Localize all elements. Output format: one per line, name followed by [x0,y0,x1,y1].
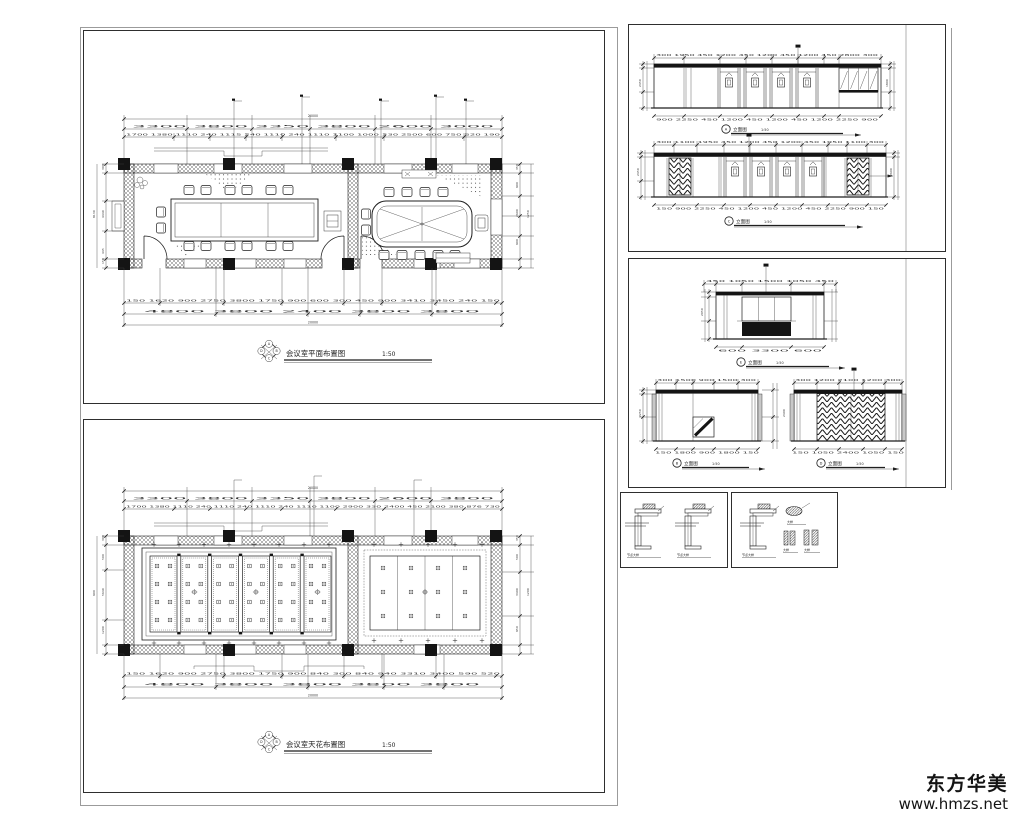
panel-ceiling-plan: 20000 3300 3800 3350 3800 2600 3800 1700… [83,419,605,793]
herringbone-feature-wall [817,394,885,441]
marker-letter: C [728,219,731,223]
wall-niche [452,164,478,173]
ceiling-title-block: A B C D 会议室天花布置图 1:50 [258,731,432,753]
trim-profile-detail: 大样 [786,503,810,525]
dim-label: 2400 [782,409,786,417]
arrowhead [855,133,861,136]
section-detail [625,504,664,549]
dim-label: 445 [101,248,105,254]
elevation-e: 450 1050 1500 1050 450 600 3300 600 2050… [700,264,845,370]
elevation-a: 300 1950 450 1200 450 1200 450 1200 450 … [638,45,896,137]
ceiling-coffer [304,556,331,632]
wall-niche [154,164,178,173]
dim-label: 2450 [638,79,642,87]
dim-label: 2450 [636,168,640,176]
dim-label: 300 [101,535,105,541]
herringbone-door [667,158,693,197]
drawing-title: 会议室平面布置图 [286,349,345,358]
column [223,644,235,656]
crown-band [656,390,758,394]
door-swing [144,236,167,259]
dim-row: 150 1050 2400 1050 150 [792,450,905,454]
dim-label: 150 [101,258,105,264]
dim-overall-bottom: 20000 [308,693,318,697]
sheet-outline-right [951,28,952,490]
side-column [790,394,794,441]
plan-keynote-leaders [232,95,474,164]
dim-label: 950 [515,626,519,632]
dim-label: 350 [515,535,519,541]
dim-label: 5640 [101,588,105,596]
dim-row: 3300 3800 3350 3800 2600 3000 [132,124,494,128]
dim-row: 300 1200 2100 1200 300 [795,378,902,382]
elevation-title: 立面图 [748,359,762,366]
trim-profile-detail: 大样 [804,530,820,553]
artwork-panel [693,417,714,437]
plan-dim-right: 350 900 2600 900 1250 [502,162,534,269]
elevation-scale: 1:50 [856,462,864,466]
ceiling-dim-top: 20000 3300 3800 3350 3800 2600 3800 1700… [122,476,503,536]
elevation-title: 立面图 [733,126,747,133]
panel-details-right: 节点大样 大样 大样 大样 [731,492,838,568]
column [425,644,437,656]
elevation-scale: 1:50 [712,462,720,466]
dim-row: 3300 3800 3350 3800 2600 3800 [132,496,494,500]
arrowhead [857,225,863,228]
window-screen-wall [737,297,796,336]
chair [201,242,211,251]
trim-profile-detail: 大样 [783,531,798,553]
chair [242,242,252,251]
ceiling-dim-left: 300 500 5640 1200 900 [92,534,124,655]
ceiling-coffer [150,556,177,632]
dim-overall-bottom: 20000 [308,320,318,324]
watermark-brand: 东方华美 [899,774,1008,796]
crown-band [654,153,886,157]
dim-label: 1800 [885,79,889,87]
chair [225,186,235,195]
wall-niche [452,536,478,545]
elevation-title: 立面图 [828,460,842,467]
floor-plan-drawing: 20000 3300 3800 3350 3800 2600 3000 1700… [84,31,604,403]
dim-row: 1700 1380 1110 240 1115 240 1110 240 111… [126,132,501,136]
ceiling-walls [118,523,502,671]
dim-label: 2050 [700,308,704,316]
wall-niche [184,645,206,654]
dim-label: 900 [515,239,519,245]
wall-niche [284,536,312,545]
dim-row: 1700 1380 1110 240 1110 240 1110 240 111… [126,504,501,508]
ceiling-dim-right: 350 500 3400 950 1200 [502,534,534,655]
elevation-title: 立面图 [684,460,698,467]
chair [157,207,166,217]
elevation-a-title: A 立面图 1:50 [722,125,861,137]
elevation-scale: 1:50 [764,220,772,224]
detail-caption: 大样 [783,547,789,552]
marker-letter: E [740,360,743,364]
drawing-title: 会议室天花布置图 [286,740,345,749]
elevations-ebd-drawing: 450 1050 1500 1050 450 600 3300 600 2050… [629,259,945,487]
chair [266,186,276,195]
column [425,158,437,170]
chair [397,251,407,260]
chair [438,188,448,197]
dim-row: 4800 3800 3800 3800 3800 [144,682,480,686]
side-column [652,394,656,441]
details-right-drawing: 节点大样 大样 大样 大样 [732,493,837,567]
detail-caption: 节点大样 [677,552,689,557]
dim-label: 8130 [92,210,96,218]
chair [201,186,211,195]
conference-room-left [157,173,342,257]
column [490,158,502,170]
elevation-b-title: B 立面图 1:50 [673,459,765,471]
column [342,158,354,170]
dim-label: 1200 [101,626,105,634]
chair [242,186,252,195]
dim-label: 2250 [638,409,642,417]
chair [402,188,412,197]
wall-niche [384,536,412,545]
dim-label: 2600 [889,168,893,176]
ceiling-grid-right [364,542,486,642]
plan-dim-bottom: 150 1620 900 2750 3800 1750 900 600 300 … [122,268,503,327]
wall-cabinet [112,201,124,231]
panel-elevations-ebd: 450 1050 1500 1050 450 600 3300 600 2050… [628,258,946,488]
dim-row: 150 1620 900 2750 3800 1750 900 840 300 … [126,671,501,675]
dim-row: 150 900 2250 450 1200 450 1200 450 2250 … [656,206,885,210]
marker-letter: B [276,349,278,353]
elevation-d: 300 1200 2100 1200 300 150 1050 2400 105… [782,368,906,471]
ceiling-coffer [181,556,208,632]
dim-label: 300 [101,164,105,170]
side-column [902,394,906,441]
panel-floor-plan: 20000 3300 3800 3350 3800 2600 3000 1700… [83,30,605,404]
dim-label: 500 [101,554,105,560]
chair [283,186,293,195]
chair [157,223,166,233]
elevation-c: 300 1100 1950 450 1200 450 1200 450 1950… [636,134,900,229]
column [223,158,235,170]
section-detail [675,504,714,549]
cad-sheet: 20000 3300 3800 3350 3800 2600 3000 1700… [0,0,1024,819]
crown-band [654,64,881,68]
dim-label: 2600 [515,209,519,217]
chair [184,242,194,251]
dim-overall-top: 20000 [308,114,318,118]
chair [420,188,430,197]
ceiling-coffer [212,556,239,632]
chair [415,251,425,260]
dim-label: 3400 [515,588,519,596]
ceiling-dim-bottom: 150 1620 900 2750 3800 1750 900 840 300 … [122,654,503,700]
detail-caption: 节点大样 [627,552,639,557]
column [342,530,354,542]
ceiling-plan-drawing: 20000 3300 3800 3350 3800 2600 3800 1700… [84,420,604,792]
chair [379,251,389,260]
dim-row: 150 1800 900 1800 150 [655,450,760,454]
drawing-scale: 1:50 [382,742,396,749]
detail-caption: 大样 [787,519,793,524]
wall-window [491,199,502,235]
door-swing [321,236,344,259]
dim-label: 1250 [526,210,530,218]
elevation-b: 300 1500 900 1500 300 150 1800 900 1800 … [638,378,779,470]
dim-label: 500 [515,554,519,560]
dim-row: 600 3300 600 [718,348,824,352]
chair [384,188,394,197]
elevation-scale: 1:50 [761,128,769,132]
marker-letter: B [676,461,679,465]
elevations-ac-drawing: 300 1950 450 1200 450 1200 450 1200 450 … [629,25,945,251]
plan-title-block: A B C D 会议室平面布置图 1:50 [258,340,432,362]
watermark: 东方华美 www.hmzs.net [899,774,1008,813]
plant [135,177,148,189]
elevation-scale: 1:50 [776,361,784,365]
chair [184,186,194,195]
dim-row: 300 1500 900 1500 300 [657,378,757,382]
column [490,530,502,542]
elevation-c-title: C 立面图 1:50 [725,217,863,229]
wall-niche [284,645,306,654]
plan-dim-top: 20000 3300 3800 3350 3800 2600 3000 1700… [122,114,503,164]
wall-niche [234,645,256,654]
conference-room-right [362,170,489,263]
panel-details-left: 节点大样 节点大样 [620,492,728,568]
arrowhead [759,467,765,470]
ceiling-coffers-left [142,542,336,645]
dim-row: 300 1950 450 1200 450 1200 450 1200 450 … [656,53,879,57]
dim-label: 1200 [526,588,530,596]
column [223,530,235,542]
side-column [758,394,762,441]
watermark-url: www.hmzs.net [899,796,1008,813]
wall-niche [154,536,178,545]
crown-band [794,390,902,394]
details-left-drawing: 节点大样 节点大样 [621,493,727,567]
detail-caption: 节点大样 [742,552,754,557]
wall-niche [284,164,312,173]
dim-row: 450 1050 1500 1050 450 [706,279,835,283]
elevation-e-title: E 立面图 1:50 [737,358,845,370]
ceiling-coffer [273,556,300,632]
column [490,644,502,656]
dim-label: 4440 [101,210,105,218]
section-detail [740,504,779,549]
chair [362,209,371,219]
console-table [402,170,436,178]
marker-letter: A [725,127,728,131]
dim-overall-top: 20000 [308,486,318,490]
elevation-d-title: D 立面图 1:50 [817,459,899,471]
dim-label: 900 [515,182,519,188]
marker-letter: D [820,461,823,465]
marker-letter: B [276,740,278,744]
chair [362,225,371,235]
panel-elevations-ac: 300 1950 450 1200 450 1200 450 1200 450 … [628,24,946,252]
chair [225,242,235,251]
wall-niche [284,259,306,268]
arrowhead [839,366,845,369]
detail-caption: 大样 [804,547,810,552]
crown-band [716,292,824,295]
arrowhead [893,467,899,470]
drawing-scale: 1:50 [382,351,396,358]
wall-niche [184,259,206,268]
dim-row: 4800 3800 2400 3800 3800 [144,309,480,313]
chair [283,242,293,251]
dim-row: 150 1620 900 2750 3800 1750 900 600 300 … [126,298,501,302]
wall-niche [234,259,256,268]
column [490,258,502,270]
dim-label: 350 [515,164,519,170]
elevation-title: 立面图 [736,218,750,225]
dim-row: 300 1100 1950 450 1200 450 1200 450 1950… [656,140,885,144]
dim-label: 900 [92,590,96,596]
dim-row: 900 2250 450 1200 450 1200 450 1200 2250… [656,117,879,121]
chair [266,242,276,251]
column [425,530,437,542]
column [223,258,235,270]
ceiling-coffer [242,556,269,632]
